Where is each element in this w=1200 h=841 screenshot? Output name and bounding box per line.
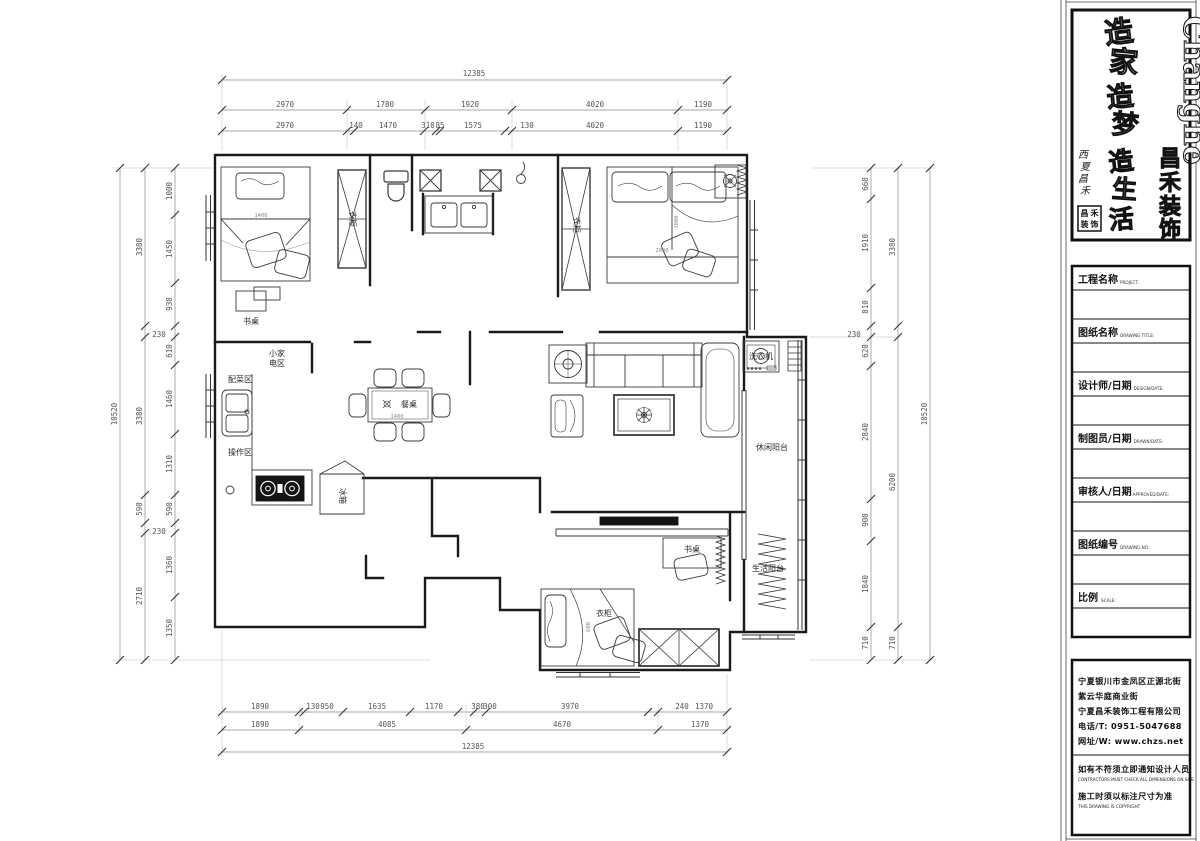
armchair-bedroom2 bbox=[660, 231, 717, 278]
svg-text:4020: 4020 bbox=[586, 100, 605, 109]
svg-text:梦: 梦 bbox=[1110, 109, 1140, 143]
shaft-hatch-icon bbox=[788, 341, 801, 371]
kitchen-sink bbox=[222, 390, 252, 436]
label-fridge: 冰箱 bbox=[338, 488, 348, 504]
armchair-bedroom1 bbox=[245, 231, 311, 279]
svg-text:10520: 10520 bbox=[920, 402, 929, 425]
label-wardrobe3: 衣柜 bbox=[596, 608, 612, 618]
svg-text:1370: 1370 bbox=[691, 720, 710, 729]
wardrobe-3 bbox=[639, 629, 719, 666]
svg-text:1910: 1910 bbox=[861, 233, 870, 252]
svg-text:1190: 1190 bbox=[694, 100, 713, 109]
label-wardrobe2: 衣柜 bbox=[572, 217, 582, 233]
svg-text:3380: 3380 bbox=[135, 237, 144, 256]
shaft-box-1 bbox=[420, 170, 441, 191]
svg-text:10520: 10520 bbox=[110, 402, 119, 425]
svg-text:禾: 禾 bbox=[1080, 185, 1091, 197]
svg-text:620: 620 bbox=[861, 344, 870, 358]
svg-text:昌: 昌 bbox=[1081, 208, 1089, 218]
svg-text:1370: 1370 bbox=[695, 702, 714, 711]
label-dining-table: 餐桌 bbox=[401, 399, 417, 409]
cabinet-size: 600 bbox=[586, 622, 592, 632]
lounge-chair bbox=[551, 395, 583, 437]
svg-text:2840: 2840 bbox=[861, 422, 870, 441]
svg-text:装: 装 bbox=[1080, 219, 1089, 229]
sliding-door bbox=[742, 390, 746, 560]
window-bedroom3 bbox=[556, 673, 640, 678]
radiator-icon-bedroom2 bbox=[737, 165, 747, 195]
note-check-dimensions: 如有不符须立即通知设计人员 bbox=[1078, 764, 1190, 774]
svg-text:饰: 饰 bbox=[1159, 217, 1181, 243]
svg-text:昌: 昌 bbox=[1078, 173, 1089, 185]
svg-text:3970: 3970 bbox=[561, 702, 580, 711]
svg-text:810: 810 bbox=[861, 300, 870, 314]
drawing-sheet: 书桌 衣柜 衣柜 小家 电区 配菜区 操作区 餐桌 冰箱 洗衣机 休闲阳台 生活… bbox=[0, 0, 1200, 841]
gas-point-icon bbox=[226, 486, 234, 494]
svg-text:1635: 1635 bbox=[368, 702, 386, 711]
svg-text:1450: 1450 bbox=[165, 239, 174, 258]
svg-text:1920: 1920 bbox=[461, 100, 480, 109]
svg-text:1170: 1170 bbox=[425, 702, 444, 711]
vanity-double-sink bbox=[425, 196, 493, 233]
svg-text:2970: 2970 bbox=[276, 100, 295, 109]
svg-text:590: 590 bbox=[165, 502, 174, 516]
label-appliance-1: 小家 bbox=[269, 348, 285, 358]
svg-text:2970: 2970 bbox=[276, 121, 295, 130]
svg-text:950: 950 bbox=[320, 702, 334, 711]
svg-text:4670: 4670 bbox=[553, 720, 572, 729]
svg-text:900: 900 bbox=[861, 513, 870, 527]
svg-text:130: 130 bbox=[306, 702, 320, 711]
contact-address-2: 紫云华庭商业街 bbox=[1078, 691, 1139, 701]
svg-text:1575: 1575 bbox=[464, 121, 482, 130]
svg-text:造: 造 bbox=[1107, 146, 1135, 177]
walls bbox=[215, 155, 806, 670]
svg-text:710: 710 bbox=[888, 636, 897, 650]
desk-1 bbox=[236, 287, 280, 311]
contact-address-1: 宁夏银川市金凤区正源北街 bbox=[1078, 676, 1181, 686]
svg-text:4020: 4020 bbox=[586, 121, 605, 130]
svg-text:6200: 6200 bbox=[888, 472, 897, 491]
label-life-balcony: 生活阳台 bbox=[752, 563, 784, 573]
title-block: 工程名称PROJECT: 图纸名称DRAWING TITLE: 设计师/日期DE… bbox=[1072, 266, 1190, 637]
window-left-kitchen bbox=[206, 374, 215, 438]
bed1-size: 1400 bbox=[254, 213, 267, 219]
bed2-length: 1800 bbox=[674, 215, 680, 228]
svg-text:1000: 1000 bbox=[165, 181, 174, 200]
svg-text:1890: 1890 bbox=[251, 702, 270, 711]
dining-chairs bbox=[349, 369, 450, 441]
svg-text:85: 85 bbox=[435, 121, 444, 130]
svg-text:930: 930 bbox=[165, 297, 174, 311]
svg-text:230: 230 bbox=[152, 330, 166, 339]
svg-text:300: 300 bbox=[483, 702, 497, 711]
table-size: 1400 bbox=[390, 414, 403, 420]
label-washer: 洗衣机 bbox=[749, 351, 773, 361]
room-labels: 书桌 衣柜 衣柜 小家 电区 配菜区 操作区 餐桌 冰箱 洗衣机 休闲阳台 生活… bbox=[228, 211, 788, 632]
pendant-lamp-icon bbox=[517, 162, 526, 184]
svg-text:4085: 4085 bbox=[378, 720, 396, 729]
svg-text:1470: 1470 bbox=[379, 121, 398, 130]
svg-text:710: 710 bbox=[861, 636, 870, 650]
label-leisure-balcony: 休闲阳台 bbox=[756, 442, 788, 452]
svg-text:2710: 2710 bbox=[135, 586, 144, 605]
svg-text:1350: 1350 bbox=[165, 618, 174, 637]
svg-text:590: 590 bbox=[135, 502, 144, 516]
radiator-icon-study bbox=[716, 536, 725, 584]
dimension-text-bottom: 1890 130 950 1635 1170 380 300 3970 240 … bbox=[251, 702, 714, 751]
svg-text:230: 230 bbox=[152, 527, 166, 536]
svg-text:230: 230 bbox=[847, 330, 861, 339]
bed2-size: 2000 bbox=[655, 248, 668, 254]
label-prep-area: 配菜区 bbox=[228, 374, 252, 384]
label-wardrobe1: 衣柜 bbox=[348, 211, 358, 227]
contact-company: 宁夏昌禾装饰工程有限公司 bbox=[1078, 706, 1181, 716]
tv-console bbox=[556, 517, 728, 536]
coil-symbols bbox=[716, 165, 801, 609]
svg-text:3380: 3380 bbox=[888, 237, 897, 256]
window-left-bedroom bbox=[206, 195, 215, 261]
stove-icon bbox=[256, 476, 304, 501]
plant-icon-coffee-table bbox=[636, 407, 652, 423]
toilet-icon bbox=[384, 171, 408, 201]
svg-text:610: 610 bbox=[165, 344, 174, 358]
bed-1 bbox=[221, 167, 310, 281]
label-desk2: 书桌 bbox=[684, 544, 700, 554]
svg-text:1190: 1190 bbox=[694, 121, 713, 130]
window-balcony-bottom bbox=[742, 635, 795, 639]
svg-text:12385: 12385 bbox=[462, 742, 485, 751]
dimension-text-left: 10520 3380 3380 590 2710 1000 1450 930 2… bbox=[110, 181, 174, 637]
windows bbox=[206, 195, 806, 677]
brand-logo-block: Chanġhe 昌 禾 装 饰 造 家 造 梦 造 生 活 西 夏 昌 禾 昌 … bbox=[1072, 10, 1200, 243]
svg-text:饰: 饰 bbox=[1091, 219, 1099, 229]
brand-seal: 昌 禾 装 饰 bbox=[1078, 206, 1101, 231]
chaise bbox=[701, 343, 739, 437]
note-check-dimensions-en: CONTRACTORS MUST CHECK ALL DIMENSIONS ON… bbox=[1078, 777, 1194, 782]
dim: 12385 bbox=[463, 69, 486, 78]
svg-text:3380: 3380 bbox=[135, 406, 144, 425]
svg-text:240: 240 bbox=[675, 702, 689, 711]
svg-text:昌: 昌 bbox=[1159, 146, 1181, 172]
contact-phone: 电话/T: 0951-5047688 bbox=[1078, 721, 1182, 731]
svg-text:禾: 禾 bbox=[1090, 208, 1099, 218]
svg-text:家: 家 bbox=[1108, 44, 1140, 80]
svg-text:310: 310 bbox=[421, 121, 435, 130]
coffee-table bbox=[614, 395, 674, 435]
contact-website: 网址/W: www.chzs.net bbox=[1078, 736, 1183, 746]
brand-logo-en: Chanġhe bbox=[1176, 16, 1200, 165]
svg-text:1780: 1780 bbox=[376, 100, 395, 109]
contact-block: 宁夏银川市金凤区正源北街 紫云华庭商业街 宁夏昌禾装饰工程有限公司 电话/T: … bbox=[1072, 660, 1194, 835]
label-appliance-2: 电区 bbox=[269, 358, 285, 368]
sofa bbox=[586, 343, 702, 387]
svg-text:140: 140 bbox=[349, 121, 363, 130]
label-desk1: 书桌 bbox=[243, 316, 259, 326]
svg-text:生: 生 bbox=[1111, 174, 1138, 205]
svg-text:禾: 禾 bbox=[1159, 170, 1181, 196]
svg-text:130: 130 bbox=[520, 121, 534, 130]
svg-text:1360: 1360 bbox=[165, 555, 174, 574]
dimension-text-top: 12385 2970 1780 1920 4020 1190 2970 140 … bbox=[276, 69, 713, 130]
svg-text:1840: 1840 bbox=[861, 574, 870, 593]
outer-wall bbox=[215, 155, 806, 670]
round-side-table bbox=[549, 345, 587, 383]
note-copyright-en: THIS DRAWING IS COPYRIGHT bbox=[1077, 804, 1141, 809]
window-bedroom2 bbox=[750, 200, 758, 330]
svg-text:1890: 1890 bbox=[251, 720, 270, 729]
note-copyright: 施工时须以标注尺寸为准 bbox=[1078, 791, 1172, 801]
shaft-box-2 bbox=[480, 170, 501, 191]
svg-text:660: 660 bbox=[861, 177, 870, 191]
brand-logo-cn: 昌 禾 装 饰 bbox=[1159, 146, 1181, 243]
label-work-area: 操作区 bbox=[228, 447, 252, 457]
svg-text:1310: 1310 bbox=[165, 454, 174, 473]
svg-text:1460: 1460 bbox=[165, 389, 174, 408]
floor-plan-canvas: 书桌 衣柜 衣柜 小家 电区 配菜区 操作区 餐桌 冰箱 洗衣机 休闲阳台 生活… bbox=[0, 0, 1200, 841]
svg-text:活: 活 bbox=[1108, 204, 1135, 235]
dimension-text-right: 660 1910 810 230 620 2840 900 1840 710 3… bbox=[847, 177, 929, 650]
